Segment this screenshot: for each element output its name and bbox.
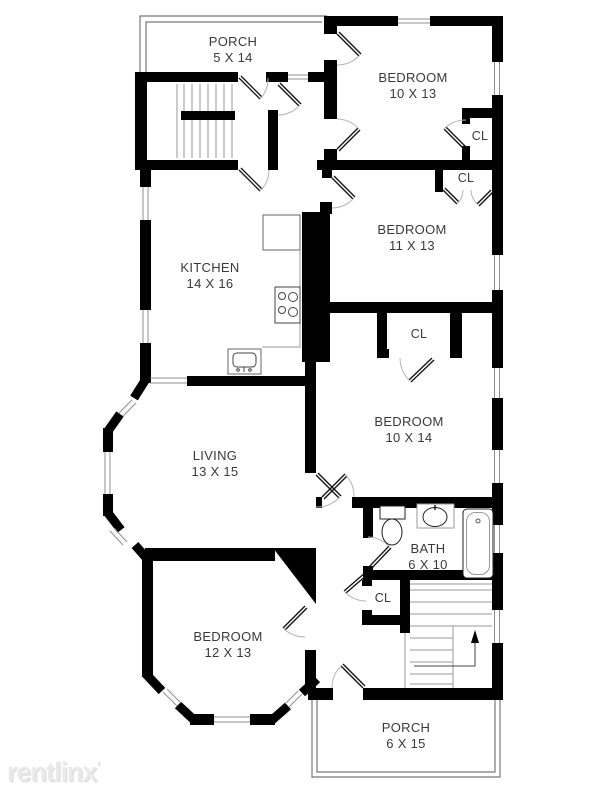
kitchen-sink-icon [228, 349, 261, 374]
room-label-living: LIVING 13 X 15 [192, 448, 239, 480]
closet-label-3: CL [411, 327, 428, 341]
room-label-bedroom-right: BEDROOM 10 X 14 [374, 414, 443, 446]
walls-layer [103, 16, 503, 725]
rentlinx-watermark: rentlinx’ [7, 757, 99, 788]
bathtub-icon [463, 509, 493, 578]
stove-icon [275, 287, 300, 323]
bath-sink-icon [417, 504, 454, 528]
stair-handrail [181, 111, 235, 120]
closet-label-4: CL [375, 591, 392, 605]
closet-label-1: CL [472, 129, 489, 143]
closet-label-2: CL [458, 171, 475, 185]
fridge-icon [263, 215, 300, 250]
floor-plan-drawing [0, 0, 612, 792]
floor-plan-page: { "watermark": { "text": "rentlinx", "ma… [0, 0, 612, 792]
staircase-upper [177, 84, 235, 158]
room-label-porch-top: PORCH 5 X 14 [209, 34, 257, 66]
room-label-porch-bottom: PORCH 6 X 15 [382, 720, 430, 752]
room-label-bedroom-mid: BEDROOM 11 X 13 [377, 222, 446, 254]
room-label-bedroom-top: BEDROOM 10 X 13 [378, 70, 447, 102]
staircase-lower [405, 584, 492, 688]
windows [105, 19, 500, 722]
room-label-bedroom-bottom: BEDROOM 12 X 13 [193, 629, 262, 661]
kitchen-fixtures [228, 215, 300, 374]
up-arrow-icon [414, 630, 479, 666]
room-label-kitchen: KITCHEN 14 X 16 [180, 260, 239, 292]
room-label-bath: BATH 6 X 10 [408, 541, 447, 573]
toilet-icon [380, 506, 405, 545]
